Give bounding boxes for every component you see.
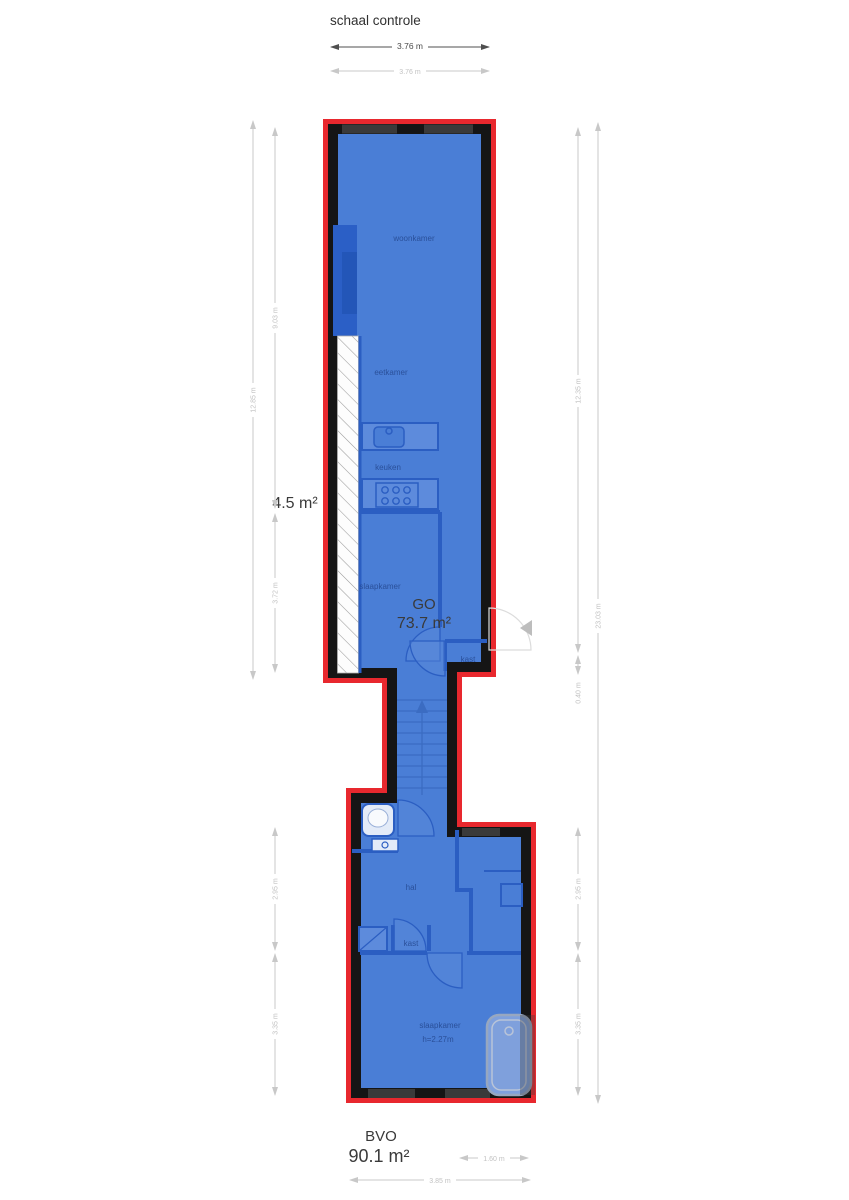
room-label-kast-upper: kast	[461, 655, 476, 664]
entrance-arrow-icon	[520, 620, 532, 636]
kitchen-sink-icon	[374, 427, 404, 447]
scale-check-dim-dark: 3.76 m	[331, 40, 489, 51]
room-label-slaapkamer-lower: slaapkamer	[419, 1021, 461, 1030]
go-label: GO	[412, 596, 435, 613]
bvo-label: BVO	[365, 1128, 397, 1145]
window-bottom-left	[368, 1089, 415, 1098]
window-extension-top	[462, 828, 500, 836]
dim-right-low-b: 3.35 m	[576, 1013, 583, 1035]
go-value: 73.7 m²	[397, 615, 452, 632]
room-label-eetkamer: eetkamer	[374, 368, 408, 377]
window-top-right	[424, 125, 473, 134]
chimney-block	[333, 225, 357, 336]
dim-left-low-a: 2.95 m	[273, 878, 280, 900]
scale-check-dim-light: 3.76 m	[331, 65, 489, 76]
page-title: schaal controle	[330, 13, 421, 28]
dim-left-lower: 3.72 m	[273, 582, 280, 604]
void-hatch-area	[338, 336, 361, 673]
floorplan-page: schaal controle 3.76 m 3.76 m	[0, 0, 849, 1200]
room-label-slaapkamer-height: h=2.27m	[422, 1035, 454, 1044]
bathtub-icon	[487, 1015, 535, 1095]
room-label-slaapkamer-upper: slaapkamer	[359, 582, 401, 591]
dim-left-total: 12.85 m	[251, 387, 258, 412]
room-label-woonkamer: woonkamer	[392, 234, 435, 243]
toilet-sink-icon	[372, 839, 398, 851]
dim-left-upper: 9.03 m	[273, 307, 280, 329]
floorplan-svg: schaal controle 3.76 m 3.76 m	[0, 0, 849, 1200]
dim-top-secondary: 3.76 m	[399, 69, 421, 76]
dim-right-upper: 12.35 m	[576, 378, 583, 403]
dim-top-primary: 3.76 m	[397, 41, 423, 51]
dim-right-total: 23.03 m	[596, 603, 603, 628]
dim-bottom-small: 1.60 m	[483, 1156, 505, 1163]
void-area-label: 4.5 m²	[272, 495, 318, 512]
room-label-keuken: keuken	[375, 463, 401, 472]
window-top-left	[342, 125, 397, 134]
dim-right-low-a: 2.95 m	[576, 878, 583, 900]
window-bottom-right	[445, 1089, 490, 1098]
dim-right-small: 0.40 m	[576, 682, 583, 704]
dim-left-low-b: 3.35 m	[273, 1013, 280, 1035]
room-label-hal: hal	[406, 883, 417, 892]
bvo-value: 90.1 m²	[348, 1146, 409, 1166]
room-label-kast-lower: kast	[404, 939, 419, 948]
dim-bottom-total: 3.85 m	[429, 1178, 451, 1185]
